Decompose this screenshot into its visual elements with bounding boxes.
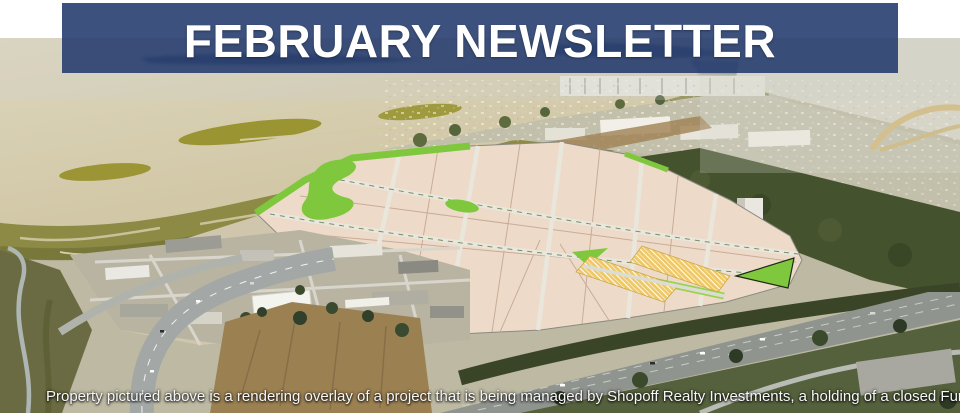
banner-title: FEBRUARY NEWSLETTER xyxy=(184,8,776,68)
newsletter-header: FEBRUARY NEWSLETTER Property pictured ab… xyxy=(0,0,960,413)
newsletter-banner: FEBRUARY NEWSLETTER xyxy=(62,3,898,73)
photo-caption: Property pictured above is a rendering o… xyxy=(0,388,960,406)
